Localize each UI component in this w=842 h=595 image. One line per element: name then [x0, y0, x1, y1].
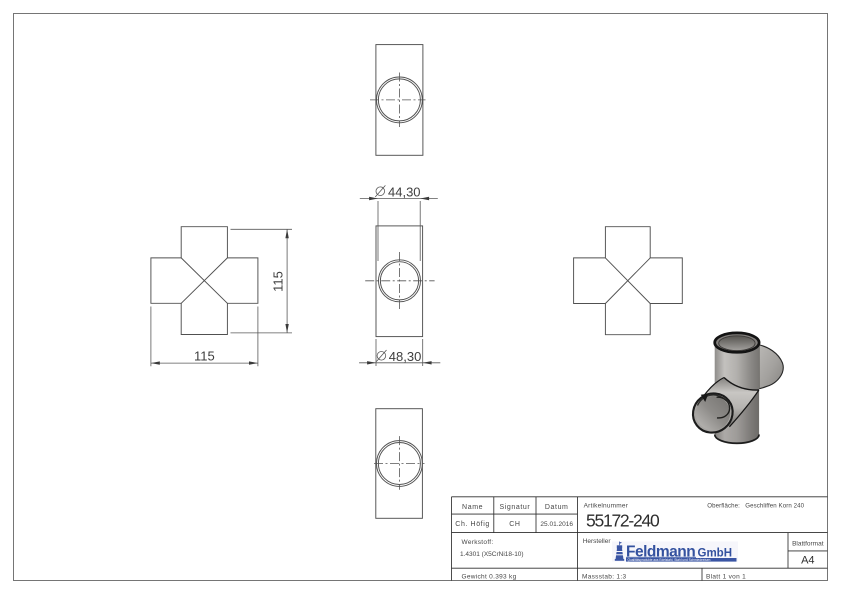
svg-text:115: 115: [270, 271, 285, 292]
svg-text:115: 115: [194, 348, 215, 363]
svg-text:44,30: 44,30: [388, 184, 421, 199]
svg-text:48,30: 48,30: [389, 349, 422, 364]
svg-text:Signatur: Signatur: [499, 504, 530, 511]
svg-text:Datum: Datum: [545, 504, 569, 511]
svg-text:55172-240: 55172-240: [586, 511, 660, 531]
svg-text:Artikelnummer: Artikelnummer: [584, 503, 629, 510]
svg-text:CH: CH: [509, 521, 520, 528]
svg-text:25.01.2016: 25.01.2016: [540, 521, 573, 528]
svg-text:Werkstoff:: Werkstoff:: [462, 539, 494, 546]
svg-text:Name: Name: [462, 504, 483, 511]
svg-text:Hersteller: Hersteller: [583, 538, 612, 545]
svg-text:Oberfläche: Geschliffen Korn: Oberfläche: Geschliffen Korn 240: [707, 503, 804, 510]
svg-text:Blatt 1 von 1: Blatt 1 von 1: [706, 573, 746, 580]
svg-text:Ch. Höfig: Ch. Höfig: [455, 521, 490, 528]
svg-text:1.4301 (X5CrNi18-10): 1.4301 (X5CrNi18-10): [460, 551, 524, 558]
svg-text:Qualitätsprodukte aus Edelstah: Qualitätsprodukte aus Edelstahl, Stahl u…: [628, 558, 711, 562]
svg-text:Massstab: 1:3: Massstab: 1:3: [582, 573, 626, 580]
svg-text:Gewicht 0.393 kg: Gewicht 0.393 kg: [462, 573, 517, 580]
svg-text:A4: A4: [801, 555, 814, 567]
svg-text:Blattformat: Blattformat: [792, 541, 824, 548]
